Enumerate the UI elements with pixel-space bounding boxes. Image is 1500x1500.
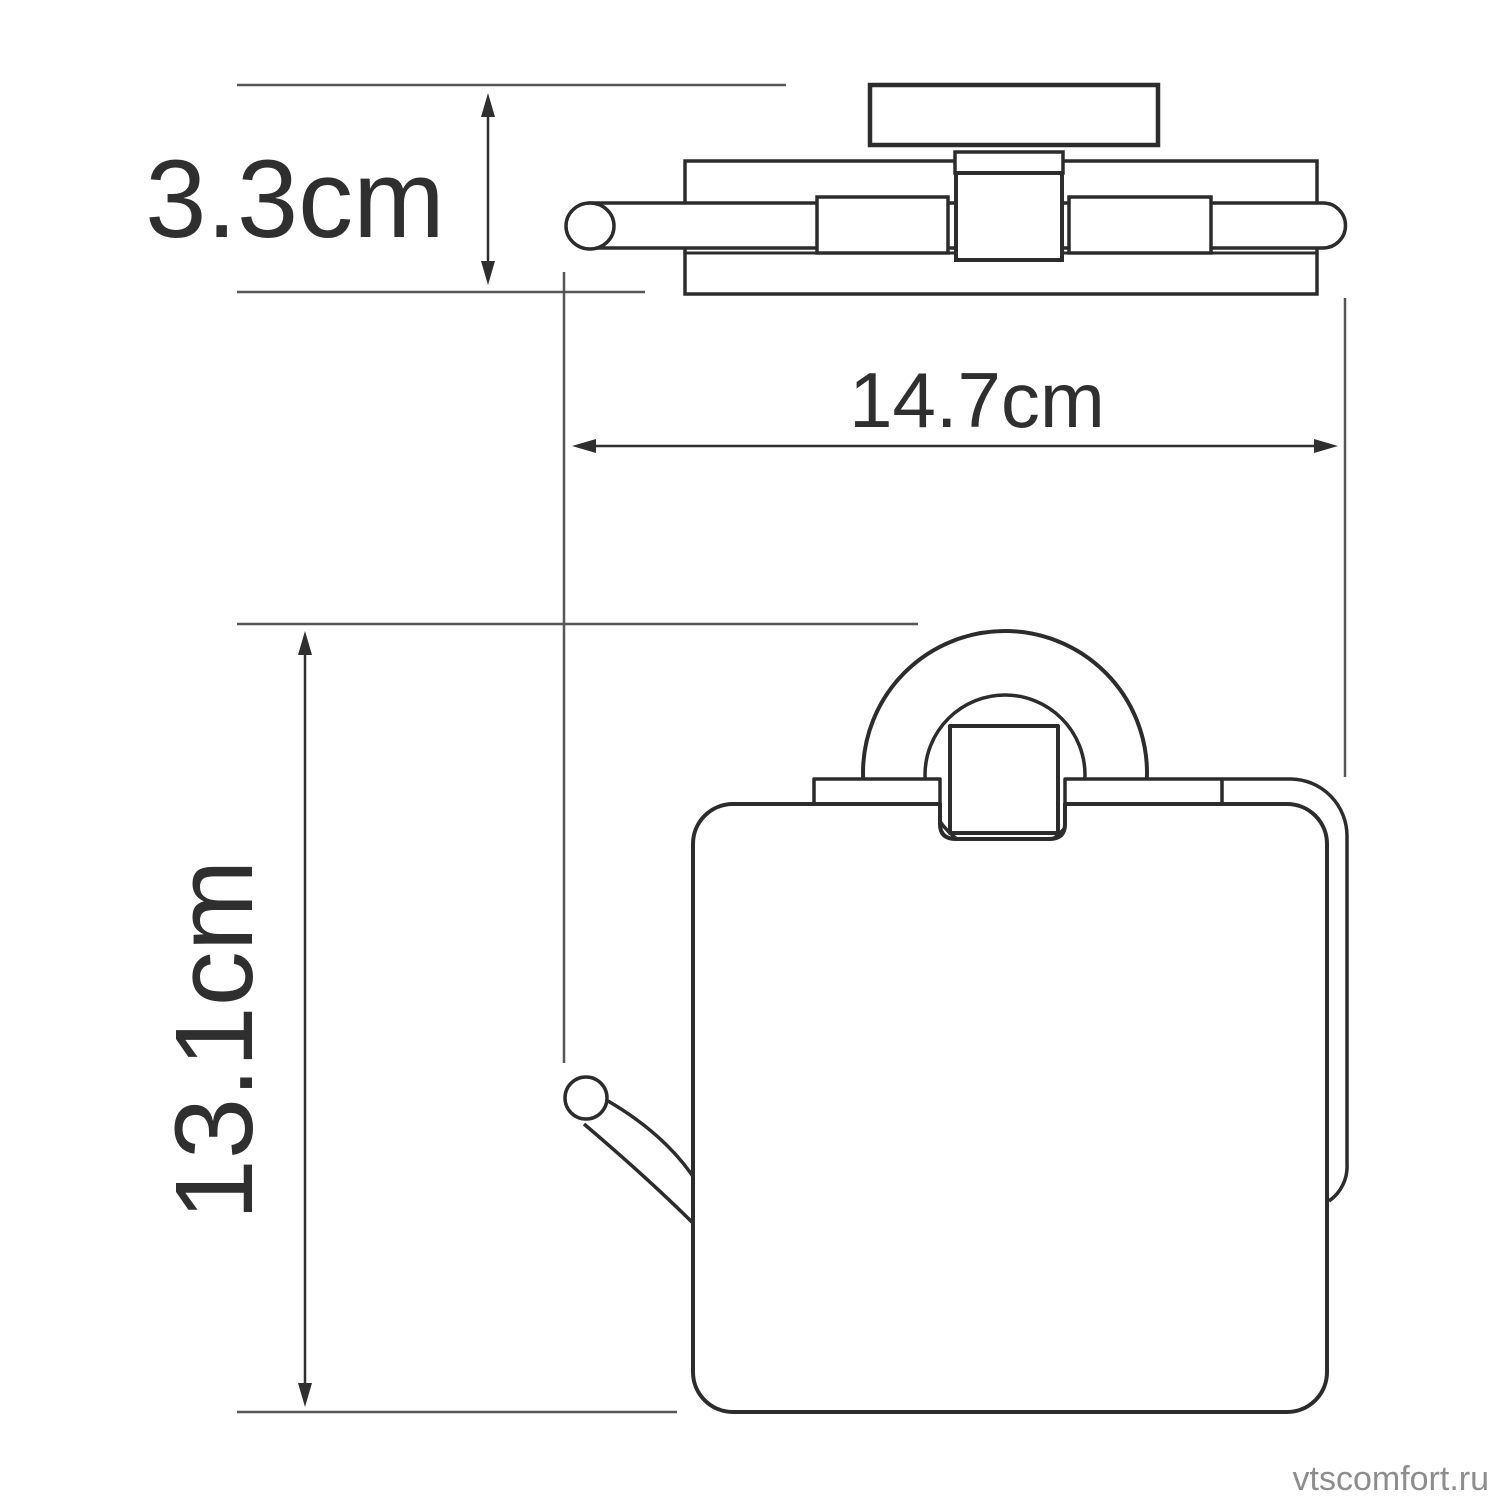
top-view-right-sleeve bbox=[1069, 197, 1211, 253]
front-view-hook-arm-upper bbox=[608, 1101, 698, 1184]
depth-dimension-label: 3.3cm bbox=[145, 138, 445, 261]
width-arrow-head-left bbox=[572, 439, 596, 453]
diagram-page: 3.3cm 14.7cm 13.1cm bbox=[0, 0, 1500, 1500]
top-view bbox=[566, 85, 1346, 294]
depth-dimension-arrow bbox=[481, 93, 495, 285]
depth-arrow-head-up bbox=[481, 93, 495, 117]
front-view bbox=[565, 631, 1347, 1412]
front-view-hook-arm-lower bbox=[584, 1124, 698, 1228]
top-view-post-block bbox=[956, 173, 1062, 260]
height-dimension-label: 13.1cm bbox=[153, 860, 276, 1221]
front-view-post-block bbox=[950, 726, 1058, 833]
width-dimension-label: 14.7cm bbox=[849, 356, 1105, 444]
top-view-post-neck bbox=[955, 152, 1063, 173]
height-arrow-head-up bbox=[298, 631, 312, 655]
watermark-text: vtscomfort.ru bbox=[1293, 1460, 1489, 1498]
top-view-wall-plate bbox=[870, 85, 1158, 145]
top-view-bar-end-cap bbox=[566, 203, 614, 249]
width-arrow-head-right bbox=[1314, 439, 1338, 453]
height-dimension-arrow bbox=[298, 631, 312, 1407]
front-view-cover bbox=[693, 804, 1327, 1412]
depth-arrow-head-down bbox=[481, 261, 495, 285]
top-view-left-sleeve bbox=[817, 197, 948, 253]
front-view-hook-ball bbox=[565, 1077, 607, 1119]
technical-drawing-canvas: 3.3cm 14.7cm 13.1cm bbox=[0, 0, 1500, 1500]
height-arrow-head-down bbox=[298, 1383, 312, 1407]
